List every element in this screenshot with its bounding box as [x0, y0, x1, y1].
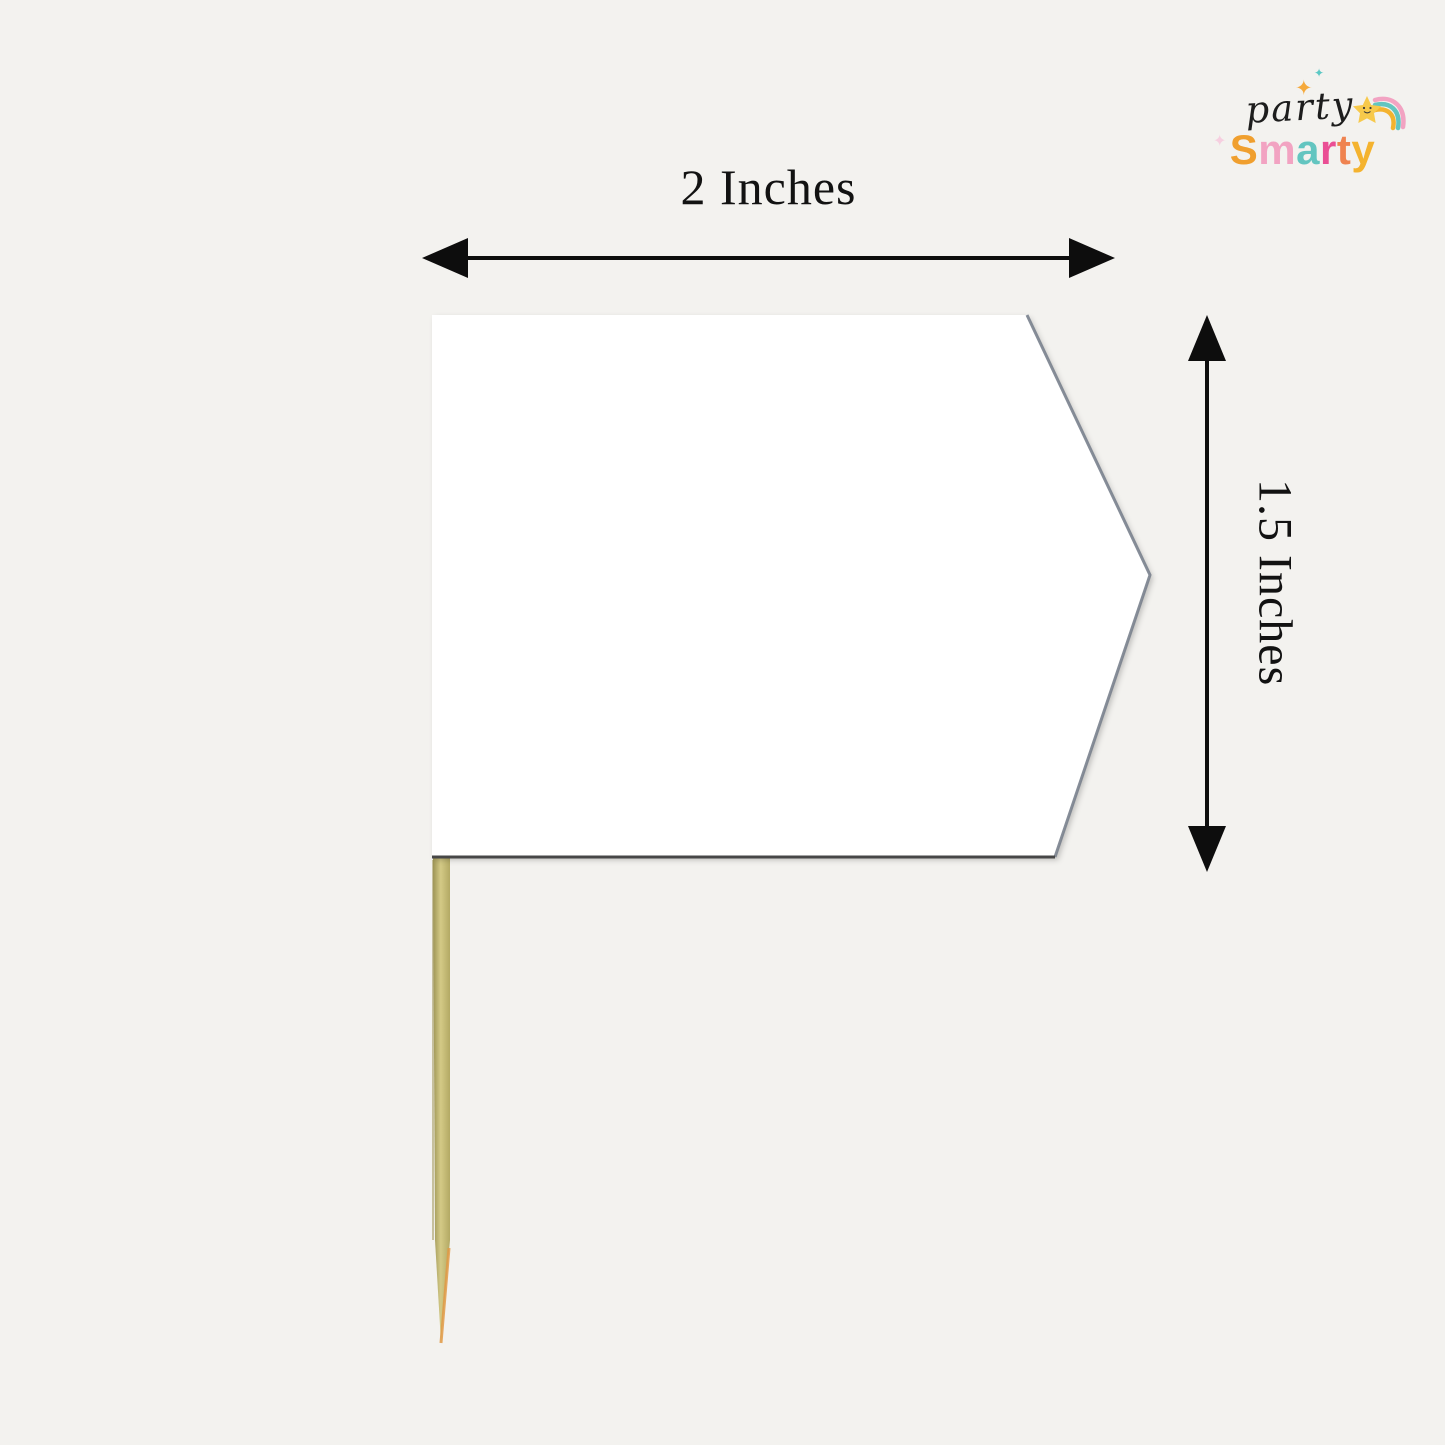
- brand-logo: ✦ ✦ ✦ party Smarty: [1205, 66, 1420, 181]
- sparkle-icon: ✦: [1314, 67, 1324, 79]
- blank-flag-label: [432, 315, 1150, 857]
- brand-letter: r: [1320, 126, 1337, 173]
- brand-letter: a: [1296, 126, 1320, 173]
- brand-letter: y: [1351, 126, 1375, 173]
- brand-letter: t: [1337, 126, 1352, 173]
- star-eye: [1369, 107, 1371, 109]
- brand-letter: S: [1230, 126, 1259, 173]
- flag-topper-graphic: [0, 0, 1445, 1445]
- product-dimension-diagram: 2 Inches 1.5 Inches: [0, 0, 1445, 1445]
- brand-name-text: Smarty: [1210, 126, 1395, 174]
- brand-letter: m: [1258, 126, 1296, 173]
- star-eye: [1363, 107, 1365, 109]
